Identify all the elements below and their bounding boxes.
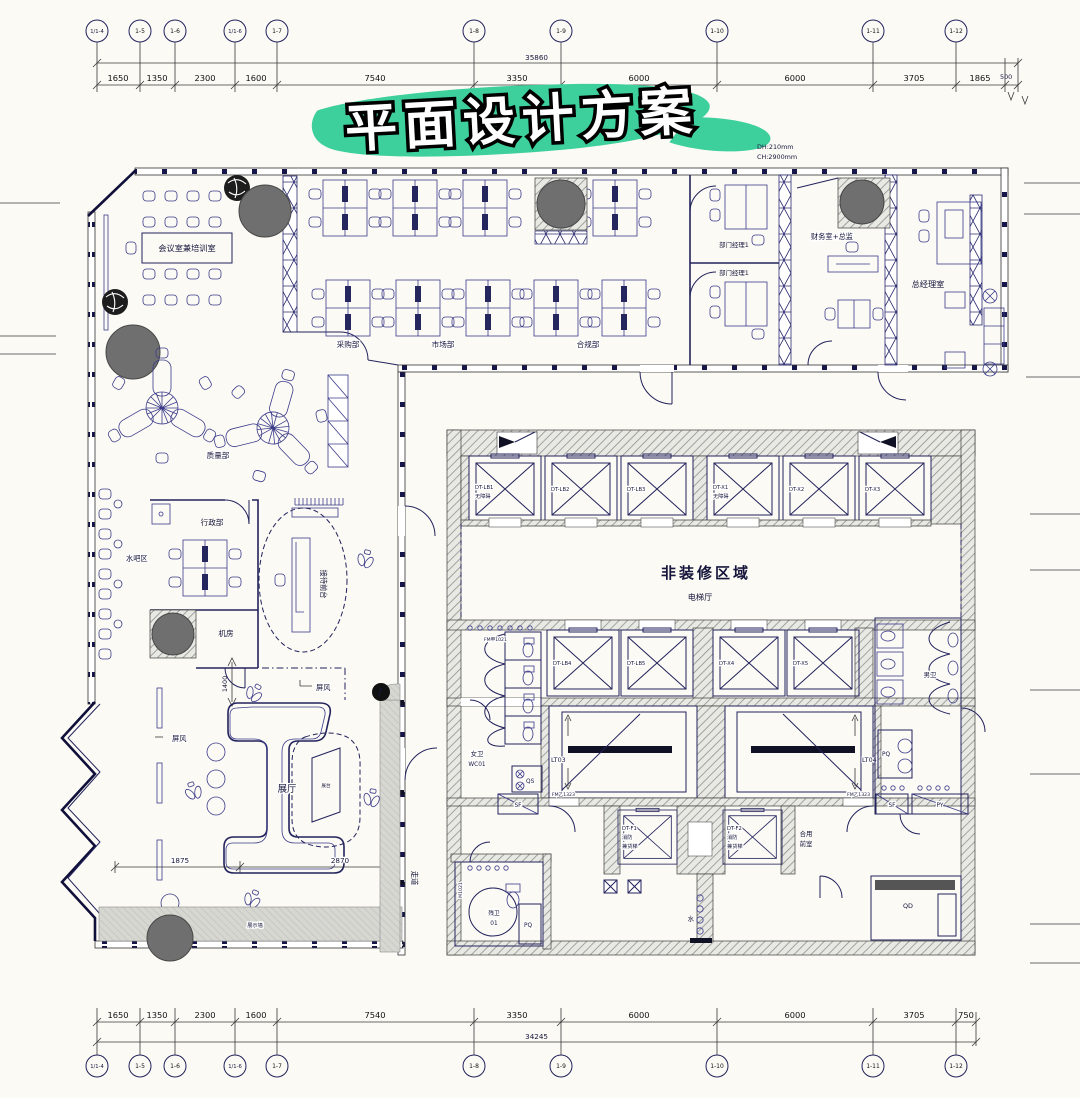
room-label-accessible-wc: 残卫: [488, 909, 500, 917]
door-tag: FM乙1323: [552, 791, 575, 798]
grid-bubble: 1-7: [272, 1063, 282, 1070]
dim-label: 6000: [784, 73, 805, 83]
room-label-non-renovation: 非装修区域: [661, 564, 751, 582]
grid-bubble: 1-7: [272, 28, 282, 35]
grid-bubble: 1-9: [556, 28, 566, 35]
grid-bubble: 1-5: [135, 28, 145, 35]
quality-dept: 质量部: [106, 325, 348, 496]
dim-label: 1350: [146, 73, 167, 83]
dim-label: 1650: [107, 1010, 128, 1020]
dim-label: 6000: [628, 1010, 649, 1020]
core: DT-LB1 无障碍 DT-LB2 DT-LB3 DT-X1 无障碍 DT-X2…: [447, 430, 985, 955]
shelf: [328, 375, 348, 467]
elevator-label: DT-LB3: [627, 487, 645, 493]
door-tag: FM甲1021: [484, 637, 507, 643]
dim-label: 2300: [194, 73, 215, 83]
room-label-quality: 质量部: [207, 450, 230, 460]
door-tag: FM乙1323: [847, 791, 870, 798]
dim-overall-top: 35860: [525, 53, 548, 62]
elevator-label: DT-X1: [713, 485, 728, 491]
qd-room: QD: [820, 876, 961, 940]
room-label-vestibule: 合用: [800, 829, 813, 838]
grid-bubble: 1-8: [469, 28, 479, 35]
water-bar: 水吧区: [99, 489, 148, 659]
grid-bubble: 1-11: [866, 1063, 880, 1070]
dim-label: 3350: [506, 1010, 527, 1020]
dim-label: 7540: [364, 1010, 385, 1020]
note-dh: DH:210mm: [757, 143, 794, 151]
admin-room: 行政部: [150, 500, 258, 610]
dim-label: 7540: [364, 73, 385, 83]
room-label-reception: 接待前台: [319, 570, 328, 599]
figure-icon: [354, 548, 377, 570]
room-label-display-wall: 展示墙: [247, 921, 263, 929]
stair-lt03: LT03: [549, 706, 697, 798]
grid-top-dims: 1650 1350 2300 1600 7540 3350 6000 6000 …: [107, 53, 1012, 83]
label-qs: QS: [526, 779, 535, 785]
inner-dim-1875: 1875: [171, 856, 189, 865]
female-wc: FM甲1021 女卫 WC01 QS SF: [468, 626, 542, 814]
room-label-female-wc-code: WC01: [468, 762, 485, 768]
elevator-label: DT-X3: [865, 487, 880, 493]
page-title: 平面设计方案: [344, 82, 701, 160]
room-label-vestibule: 前室: [800, 839, 813, 848]
room-label-manager2: 部门经理1: [719, 268, 749, 277]
stair-lt04: LT04: [725, 706, 877, 798]
dim-label: 1600: [245, 1010, 266, 1020]
grid-bubble: 1-11: [866, 28, 880, 35]
room-label-accessible-wc-code: 01: [490, 921, 498, 927]
label-pq: PQ: [524, 923, 532, 929]
reception-area: 接待前台: [259, 498, 377, 652]
elevator-label: DT-LB2: [551, 487, 569, 493]
room-label-screen-a: 屏风: [316, 683, 330, 692]
inner-dim-1400: 1400: [221, 676, 229, 692]
grid-bottom: 1/1-4 1-5 1-6 1/1-6 1-7 1-8 1-9 1-10 1-1…: [86, 1008, 980, 1077]
elevator-label: DT-F1: [622, 826, 637, 832]
exhibition-hall: 屏风 屏风 1400 展台 展厅 1875 2870 展示墙: [99, 658, 402, 961]
server-room: 机房: [150, 610, 258, 688]
label-sf: SF: [514, 803, 521, 809]
dim-label: 1865: [969, 73, 990, 83]
fire-elevators: DT-F1 消防 兼货梯 DT-F2 消防 兼货梯: [604, 806, 795, 874]
finance-room: 财务室+总监: [797, 178, 890, 365]
dim-label: 3705: [903, 73, 924, 83]
label-sf: SF: [888, 803, 895, 809]
room-label-marketing: 市场部: [432, 339, 455, 349]
elevator-note: 消防: [622, 833, 632, 841]
room-label-server: 机房: [218, 628, 233, 638]
room-label-compliance: 合规部: [577, 339, 600, 349]
column: [147, 915, 193, 961]
room-label-waterbar: 水吧区: [126, 554, 148, 563]
grid-bubble: 1/1-6: [228, 29, 242, 35]
elevator-label: DT-X2: [789, 487, 804, 493]
open-office: 采购部 市场部 合规部: [309, 178, 660, 349]
grid-bubble: 1-5: [135, 1063, 145, 1070]
figure-icon: [181, 779, 205, 803]
room-label-female-wc: 女卫: [471, 749, 484, 758]
dim-label: 2300: [194, 1010, 215, 1020]
elevator-label: DT-LB1: [475, 485, 493, 491]
plant-icon: [102, 289, 128, 315]
room-label-gm: 总经理室: [912, 279, 945, 289]
elevator-label: DT-F2: [727, 826, 742, 832]
elevator-note: 无障碍: [713, 492, 729, 500]
dim-label: 6000: [784, 1010, 805, 1020]
elevator-note: 无障碍: [475, 492, 491, 500]
room-label-display-stand: 展台: [321, 782, 331, 789]
room-label-exhibition: 展厅: [278, 784, 297, 795]
label-pq: PQ: [882, 752, 890, 758]
grid-bubble: 1-6: [170, 1063, 180, 1070]
room-label-qd: QD: [903, 902, 913, 910]
room-label-corridor: 走道: [410, 871, 419, 885]
gm-office: 总经理室: [912, 195, 1004, 376]
column: [537, 180, 585, 228]
dim-label-edge: 500: [1000, 73, 1012, 81]
grid-bubble: 1-10: [710, 28, 724, 35]
room-label-purchasing: 采购部: [337, 339, 360, 349]
dim-label: 6000: [628, 73, 649, 83]
grid-bubble: 1-6: [170, 28, 180, 35]
grid-bubble: 1/1-6: [228, 1064, 242, 1070]
column: [840, 180, 884, 224]
dim-overall-bottom: 34245: [525, 1032, 548, 1041]
column: [152, 613, 194, 655]
stair-label: LT03: [551, 756, 566, 764]
elevator-label: DT-X5: [793, 661, 808, 667]
inner-dim-2870: 2870: [331, 856, 350, 865]
grid-top-bubbles: 1/1-4 1-5 1-6 1/1-6 1-7 1-8 1-9 1-10 1-1…: [86, 20, 967, 42]
dim-label: 3350: [506, 73, 527, 83]
grid-bubble: 1-9: [556, 1063, 566, 1070]
grid-bubble: 1/1-4: [90, 29, 104, 35]
room-label-meeting: 会议室兼培训室: [158, 243, 215, 253]
room-label-elevator-hall: 电梯厅: [688, 592, 713, 602]
dim-label: 1650: [107, 73, 128, 83]
door-tag: M1021: [458, 882, 464, 898]
figure-icon: [361, 787, 383, 808]
dim-label: 3705: [903, 1010, 924, 1020]
elevator-note: 消防: [727, 833, 737, 841]
dim-label: 1350: [146, 1010, 167, 1020]
elevator-note: 兼货梯: [727, 842, 743, 850]
room-label-admin: 行政部: [201, 517, 224, 527]
note-ch: CH:2900mm: [757, 153, 797, 161]
zigzag-wall: [62, 702, 95, 941]
label-water: 水: [688, 914, 695, 923]
elevator-label: DT-LB4: [553, 661, 572, 667]
grid-bubble: 1/1-4: [90, 1064, 104, 1070]
column: [239, 185, 291, 237]
elevator-label: DT-X4: [719, 661, 735, 667]
accessible-wc: 残卫 01 PQ M1021: [451, 842, 551, 949]
dim-label: 1600: [245, 73, 266, 83]
elevator-label: DT-LB5: [627, 661, 645, 667]
column: [106, 325, 160, 379]
water-point: 水: [604, 880, 712, 943]
room-label-screen-b: 屏风: [172, 734, 186, 743]
title-banner: 平面设计方案: [310, 73, 771, 174]
room-label-finance: 财务室+总监: [811, 232, 853, 241]
elevator-note: 兼货梯: [622, 842, 638, 850]
floorplan-drawing: 1/1-4 1-5 1-6 1/1-6 1-7 1-8 1-9 1-10 1-1…: [0, 0, 1080, 1098]
grid-bottom-dims: 1650 1350 2300 1600 7540 3350 6000 6000 …: [107, 1010, 973, 1041]
grid-bubble: 1-8: [469, 1063, 479, 1070]
dim-label: 750: [958, 1010, 974, 1020]
room-label-male-wc: 男卫: [924, 671, 937, 679]
grid-bubble: 1-10: [710, 1063, 724, 1070]
grid-bubble: 1-12: [949, 1063, 963, 1070]
floorplan-page: 1/1-4 1-5 1-6 1/1-6 1-7 1-8 1-9 1-10 1-1…: [0, 0, 1080, 1098]
label-py: PY: [937, 803, 944, 809]
grid-bubble: 1-12: [949, 28, 963, 35]
grid-bottom-bubbles: 1/1-4 1-5 1-6 1/1-6 1-7 1-8 1-9 1-10 1-1…: [86, 1055, 967, 1077]
room-label-manager1: 部门经理1: [719, 240, 749, 249]
